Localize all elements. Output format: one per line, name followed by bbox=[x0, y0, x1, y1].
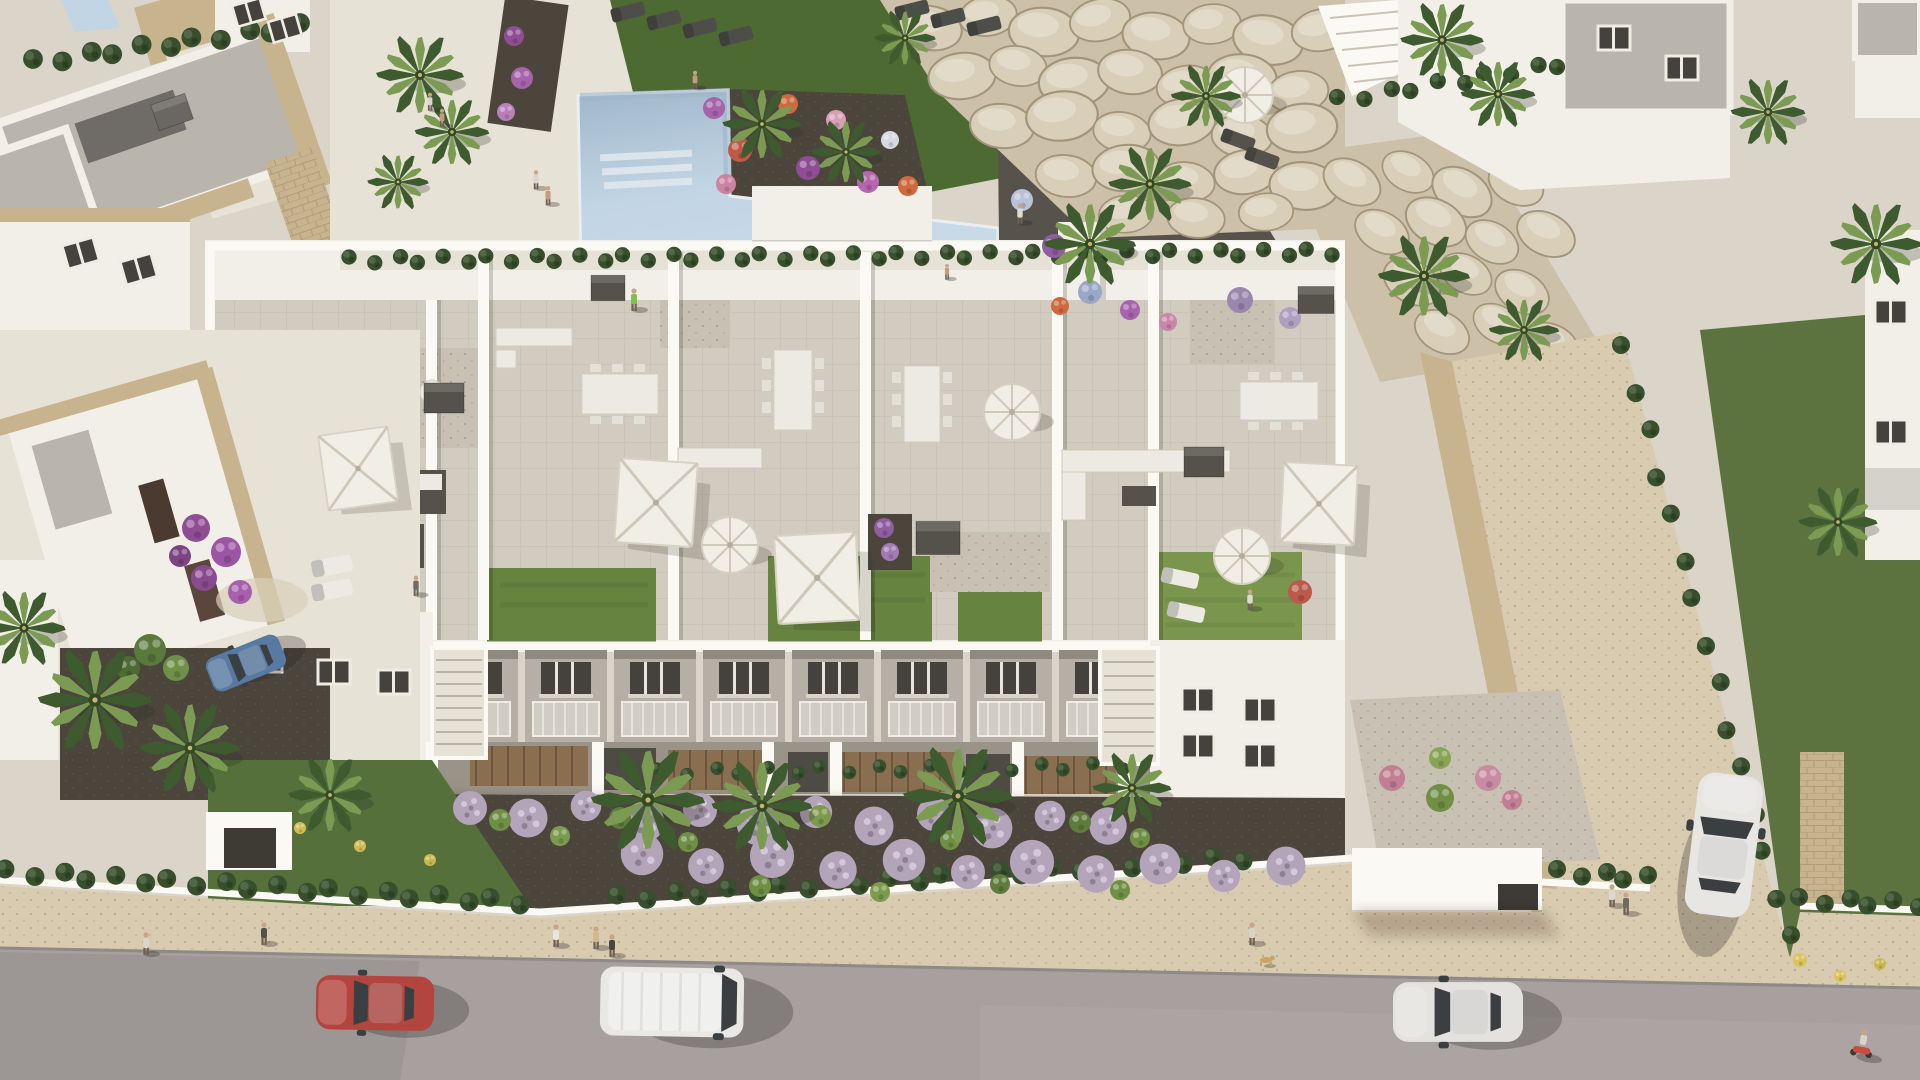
left-villa bbox=[0, 330, 420, 800]
aerial-render bbox=[0, 0, 1920, 1080]
stairs-right bbox=[1100, 648, 1158, 764]
entrance-door bbox=[1498, 884, 1538, 910]
pool-steps bbox=[600, 150, 692, 190]
stairs-left bbox=[432, 648, 486, 758]
aerial-render-stage bbox=[0, 0, 1920, 1080]
